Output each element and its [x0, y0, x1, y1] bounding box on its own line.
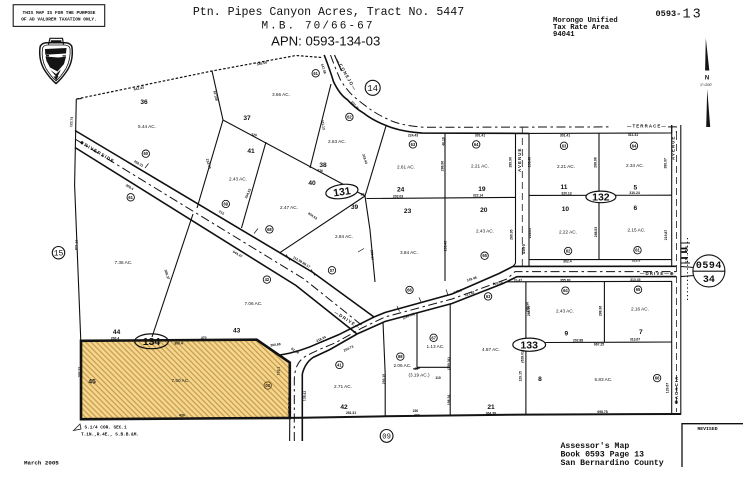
- svg-text:61: 61: [635, 248, 640, 253]
- svg-text:94041: 94041: [553, 31, 575, 39]
- svg-text:134: 134: [143, 336, 161, 348]
- svg-text:288.53: 288.53: [594, 227, 598, 237]
- svg-text:66: 66: [655, 376, 660, 381]
- svg-text:Book 0593 Page 13: Book 0593 Page 13: [561, 450, 645, 460]
- svg-text:67: 67: [431, 335, 436, 340]
- svg-text:5.83 AC.: 5.83 AC.: [595, 377, 613, 382]
- svg-text:10: 10: [562, 206, 570, 213]
- svg-text:63: 63: [411, 142, 416, 147]
- svg-text:288.96: 288.96: [526, 302, 530, 312]
- svg-text:288.98: 288.98: [594, 157, 598, 167]
- svg-text:132: 132: [592, 192, 610, 204]
- svg-text:2.63 AC.: 2.63 AC.: [328, 139, 346, 144]
- svg-text:313.9: 313.9: [632, 259, 641, 263]
- svg-text:4590: 4590: [521, 243, 526, 254]
- svg-text:131: 131: [332, 185, 351, 199]
- svg-text:133: 133: [520, 340, 538, 352]
- svg-text:(3.19 AC.): (3.19 AC.): [408, 373, 430, 378]
- svg-text:2.21 AC.: 2.21 AC.: [557, 164, 575, 169]
- svg-text:7.36 AC.: 7.36 AC.: [115, 260, 133, 265]
- svg-text:301.41: 301.41: [560, 134, 570, 138]
- svg-text:310.24: 310.24: [629, 191, 639, 195]
- svg-text:1.13 AC.: 1.13 AC.: [427, 344, 445, 349]
- svg-text:63: 63: [486, 294, 491, 299]
- svg-text:2.16 AC.: 2.16 AC.: [631, 307, 649, 312]
- svg-text:34: 34: [703, 275, 715, 286]
- svg-text:REVISED: REVISED: [697, 426, 717, 432]
- svg-text:2.22 AC.: 2.22 AC.: [559, 230, 577, 235]
- svg-text:2.43 AC.: 2.43 AC.: [229, 177, 247, 182]
- svg-text:—DRIVE—⊕: —DRIVE—⊕: [640, 271, 675, 276]
- svg-text:293.15: 293.15: [382, 374, 386, 384]
- svg-text:13: 13: [683, 8, 703, 23]
- svg-text:OF AD VALOREM TAXATION ONLY.: OF AD VALOREM TAXATION ONLY.: [21, 16, 97, 22]
- svg-text:Ptn. Pipes Canyon Acres, Tract: Ptn. Pipes Canyon Acres, Tract No. 5447: [193, 6, 464, 19]
- svg-text:289.95: 289.95: [510, 229, 514, 239]
- svg-text:60: 60: [144, 151, 149, 156]
- svg-text:39: 39: [351, 204, 359, 211]
- svg-text:(628.01): (628.01): [521, 350, 525, 363]
- svg-text:15: 15: [54, 249, 64, 258]
- svg-text:61: 61: [128, 195, 133, 200]
- svg-text:200.4: 200.4: [111, 337, 120, 341]
- svg-text:871.16: 871.16: [74, 240, 79, 251]
- svg-text:667.25: 667.25: [594, 343, 604, 347]
- svg-text:36: 36: [140, 99, 148, 106]
- svg-text:311.41: 311.41: [628, 133, 638, 137]
- svg-text:2.34 AC.: 2.34 AC.: [626, 163, 644, 168]
- svg-text:300.4: 300.4: [174, 342, 183, 346]
- svg-text:44: 44: [113, 329, 121, 336]
- svg-text:138.43: 138.43: [302, 391, 307, 402]
- svg-text:7.50 AC.: 7.50 AC.: [172, 378, 190, 383]
- svg-text:64: 64: [563, 288, 568, 293]
- svg-text:41: 41: [337, 362, 342, 367]
- svg-text:288.96: 288.96: [441, 161, 445, 171]
- svg-text:1″=200′: 1″=200′: [700, 83, 712, 87]
- svg-text:66: 66: [407, 288, 412, 293]
- svg-text:470: 470: [201, 336, 207, 340]
- svg-text:2.15 AC.: 2.15 AC.: [628, 228, 646, 233]
- svg-text:302.32: 302.32: [78, 367, 82, 378]
- svg-text:129.15: 129.15: [519, 371, 523, 381]
- svg-text:3.84 AC.: 3.84 AC.: [400, 250, 418, 255]
- svg-text:41: 41: [247, 148, 255, 155]
- svg-text:70.47: 70.47: [514, 278, 523, 283]
- svg-text:301.41: 301.41: [475, 134, 485, 138]
- svg-text:S.1/4 COR. SEC.1: S.1/4 COR. SEC.1: [85, 426, 128, 431]
- svg-text:298.45: 298.45: [528, 157, 532, 167]
- svg-text:202.03: 202.03: [393, 195, 403, 199]
- svg-text:APN: 0593-134-03: APN: 0593-134-03: [271, 34, 380, 49]
- svg-text:(259.34): (259.34): [447, 357, 451, 370]
- svg-text:200: 200: [414, 414, 420, 418]
- svg-text:129.67: 129.67: [666, 383, 670, 393]
- svg-text:3.66 AC.: 3.66 AC.: [272, 92, 290, 97]
- svg-text:43: 43: [233, 327, 241, 334]
- svg-text:336: 336: [317, 168, 323, 173]
- svg-text:202.88: 202.88: [573, 339, 583, 343]
- svg-text:✱OAK: ✱OAK: [287, 396, 292, 414]
- svg-text:Assessor's Map: Assessor's Map: [561, 441, 630, 451]
- svg-text:313.43: 313.43: [630, 278, 640, 282]
- svg-text:✱ACACIA: ✱ACACIA: [674, 376, 679, 404]
- svg-text:133.1: 133.1: [276, 366, 280, 375]
- svg-text:8: 8: [538, 376, 542, 383]
- svg-text:123.74: 123.74: [69, 117, 74, 128]
- svg-text:288.96: 288.96: [599, 306, 603, 316]
- svg-text:110: 110: [435, 376, 441, 380]
- svg-text:2.43 AC.: 2.43 AC.: [556, 309, 574, 314]
- svg-text:63: 63: [562, 143, 567, 148]
- svg-text:42: 42: [340, 404, 348, 411]
- svg-text:40: 40: [308, 180, 316, 187]
- svg-text:45: 45: [88, 379, 96, 386]
- svg-text:69: 69: [224, 202, 229, 207]
- svg-text:2.06 AC.: 2.06 AC.: [394, 363, 412, 368]
- svg-text:289.96: 289.96: [509, 157, 513, 167]
- svg-text:March 2005: March 2005: [24, 460, 59, 467]
- svg-text:03: 03: [265, 383, 270, 388]
- svg-text:M.B. 70/66-67: M.B. 70/66-67: [261, 21, 374, 33]
- svg-text:293.43: 293.43: [443, 241, 447, 251]
- svg-text:09: 09: [382, 434, 391, 442]
- svg-text:4.87 AC.: 4.87 AC.: [482, 347, 500, 352]
- svg-text:320: 320: [251, 133, 257, 138]
- svg-text:355.83: 355.83: [560, 279, 570, 283]
- svg-text:THIS MAP IS FOR THE PURPOSE: THIS MAP IS FOR THE PURPOSE: [23, 10, 96, 16]
- svg-text:218.05: 218.05: [528, 228, 532, 238]
- svg-text:21: 21: [487, 404, 495, 411]
- svg-text:20: 20: [480, 207, 488, 214]
- svg-text:1M..5E: 1M..5E: [685, 245, 689, 263]
- svg-text:322.14: 322.14: [473, 193, 483, 197]
- svg-text:230: 230: [413, 409, 419, 413]
- svg-text:224.43: 224.43: [408, 133, 418, 137]
- svg-text:320.13: 320.13: [561, 191, 571, 195]
- svg-text:62: 62: [347, 114, 352, 119]
- svg-text:313.67: 313.67: [630, 337, 640, 341]
- svg-text:62: 62: [566, 249, 571, 254]
- svg-text:37: 37: [243, 115, 251, 122]
- svg-text:64: 64: [474, 142, 479, 147]
- svg-text:7.06 AC.: 7.06 AC.: [245, 301, 263, 306]
- svg-text:07: 07: [330, 268, 335, 273]
- svg-text:9: 9: [564, 331, 568, 338]
- svg-text:698.78: 698.78: [597, 410, 607, 414]
- svg-text:24: 24: [397, 187, 405, 194]
- svg-text:—TERRACE—: —TERRACE—: [627, 124, 667, 129]
- svg-text:2.61 AC.: 2.61 AC.: [397, 165, 415, 170]
- svg-text:San Bernardino County: San Bernardino County: [561, 458, 664, 468]
- svg-text:0594: 0594: [696, 261, 722, 272]
- svg-text:11: 11: [561, 184, 568, 191]
- svg-text:19: 19: [478, 186, 486, 193]
- svg-text:AVENUE: AVENUE: [670, 135, 675, 160]
- svg-text:2.43 AC.: 2.43 AC.: [476, 229, 494, 234]
- svg-text:6: 6: [633, 205, 637, 212]
- svg-text:0593-: 0593-: [656, 9, 682, 19]
- svg-text:2.84 AC.: 2.84 AC.: [335, 234, 353, 239]
- svg-text:2.47 AC.: 2.47 AC.: [280, 205, 298, 210]
- svg-text:302.4: 302.4: [563, 260, 572, 264]
- svg-text:23: 23: [404, 208, 412, 215]
- svg-text:40.16: 40.16: [442, 137, 446, 146]
- svg-text:289.97: 289.97: [664, 158, 668, 168]
- svg-text:61: 61: [313, 71, 318, 76]
- svg-text:42: 42: [265, 277, 270, 282]
- svg-text:65: 65: [636, 287, 641, 292]
- svg-text:65: 65: [482, 253, 487, 258]
- svg-text:14: 14: [367, 84, 378, 94]
- svg-text:T.1N.,R.4E., S.B.B.&M.: T.1N.,R.4E., S.B.B.&M.: [81, 433, 139, 438]
- svg-text:364.38: 364.38: [486, 412, 496, 416]
- svg-text:68: 68: [267, 227, 272, 232]
- svg-text:281.31: 281.31: [346, 411, 356, 415]
- svg-text:198.34: 198.34: [447, 395, 451, 405]
- svg-text:N: N: [705, 76, 709, 82]
- svg-text:99: 99: [361, 192, 365, 196]
- svg-text:219.87: 219.87: [664, 230, 668, 240]
- svg-text:2.21 AC.: 2.21 AC.: [471, 163, 489, 168]
- svg-text:5.44 AC.: 5.44 AC.: [138, 124, 156, 129]
- svg-text:68: 68: [398, 354, 403, 359]
- svg-text:430: 430: [179, 414, 185, 418]
- svg-text:AVENUE: AVENUE: [517, 147, 522, 172]
- svg-text:64: 64: [632, 143, 637, 148]
- svg-text:2.71 AC.: 2.71 AC.: [334, 384, 352, 389]
- svg-text:7: 7: [639, 329, 643, 336]
